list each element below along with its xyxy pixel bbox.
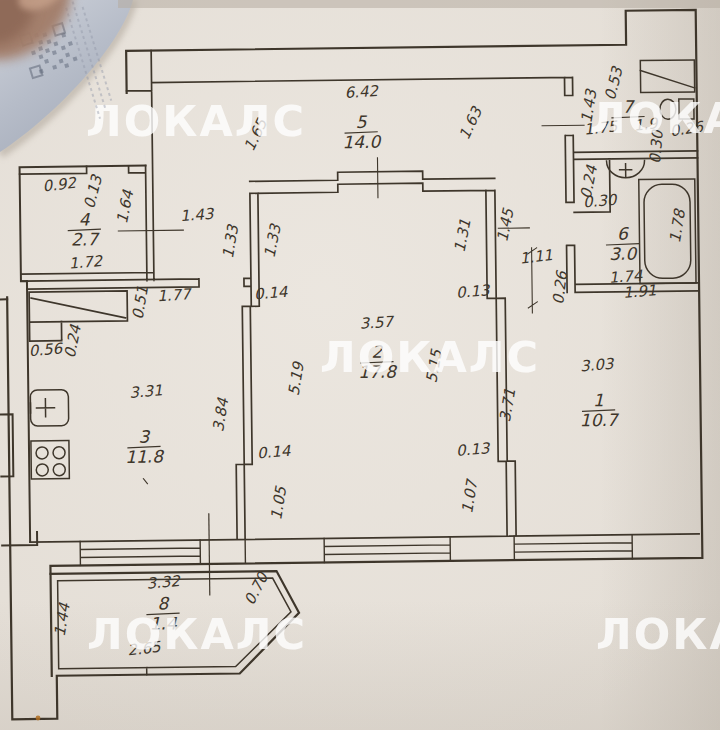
room-number: 5 <box>355 112 367 132</box>
floorplan-svg: 6.421.651.631.430.531.751.90.260.300.240… <box>0 0 720 730</box>
dimension-label: 0.14 <box>256 442 291 463</box>
dimension-label: 3.03 <box>579 355 615 376</box>
dimension-label: 1.72 <box>68 252 104 273</box>
watermark-text: ЛОКАЛС <box>590 93 720 143</box>
watermark-text: ЛОКАЛС <box>86 96 306 146</box>
room-area: 14.0 <box>342 132 382 152</box>
top-edge-strip <box>118 0 720 8</box>
floorplan-photo: 6.421.651.631.430.531.751.90.260.300.240… <box>0 0 720 730</box>
dimension-label: 0.13 <box>455 281 491 302</box>
dimension-label: 3.57 <box>359 313 395 333</box>
watermark-text: ЛОКАЛС <box>320 332 540 382</box>
room-area: 10.7 <box>580 410 620 430</box>
dimension-label: 0.13 <box>455 439 491 460</box>
room-area: 11.8 <box>125 446 165 466</box>
dimension-label: 0.56 <box>28 339 64 360</box>
dimension-label: 6.42 <box>344 82 380 102</box>
dimension-label: 0.14 <box>253 283 288 304</box>
room-area: 2.7 <box>71 229 100 249</box>
room-number: 1 <box>593 390 604 410</box>
room-number: 3 <box>138 427 150 447</box>
paper-speck <box>36 716 41 721</box>
watermark-text: ЛОКАЛС <box>87 609 307 659</box>
dimension-label: 1.91 <box>622 281 657 302</box>
dimension-label: 1.77 <box>157 285 193 305</box>
room-number: 6 <box>617 224 629 244</box>
dimension-label: 3.32 <box>146 572 182 593</box>
room-number: 4 <box>79 209 91 229</box>
dimension-label: 1.43 <box>179 205 215 226</box>
dimension-label: 0.30 <box>582 191 618 212</box>
watermark-text: ЛОКАЛС <box>596 609 720 659</box>
room-area: 3.0 <box>609 244 638 264</box>
dimension-label: 3.31 <box>129 381 164 402</box>
